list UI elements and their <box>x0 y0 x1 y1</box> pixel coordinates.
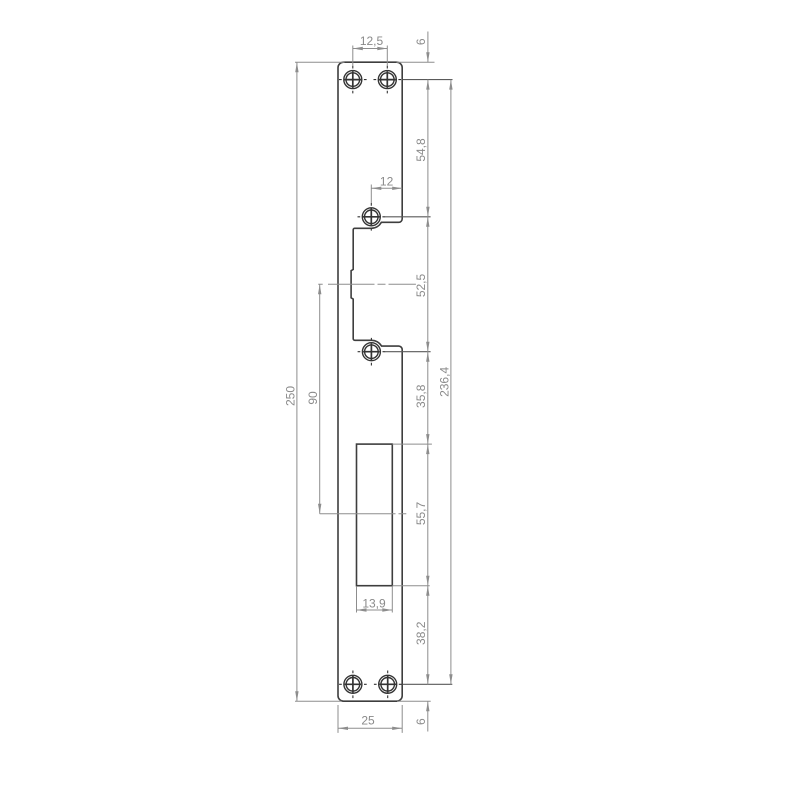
svg-text:6: 6 <box>414 38 428 45</box>
svg-text:90: 90 <box>306 391 320 405</box>
svg-text:38,2: 38,2 <box>414 621 428 645</box>
svg-text:13,9: 13,9 <box>362 596 386 610</box>
svg-text:54,8: 54,8 <box>414 138 428 162</box>
svg-text:6: 6 <box>414 718 428 725</box>
svg-text:236,4: 236,4 <box>438 367 452 397</box>
svg-text:250: 250 <box>283 386 297 406</box>
svg-text:35,8: 35,8 <box>414 384 428 408</box>
svg-text:12: 12 <box>380 175 394 189</box>
svg-text:12,5: 12,5 <box>360 34 384 48</box>
svg-text:52,5: 52,5 <box>414 273 428 297</box>
svg-text:25: 25 <box>361 714 375 728</box>
svg-text:55,7: 55,7 <box>414 501 428 525</box>
